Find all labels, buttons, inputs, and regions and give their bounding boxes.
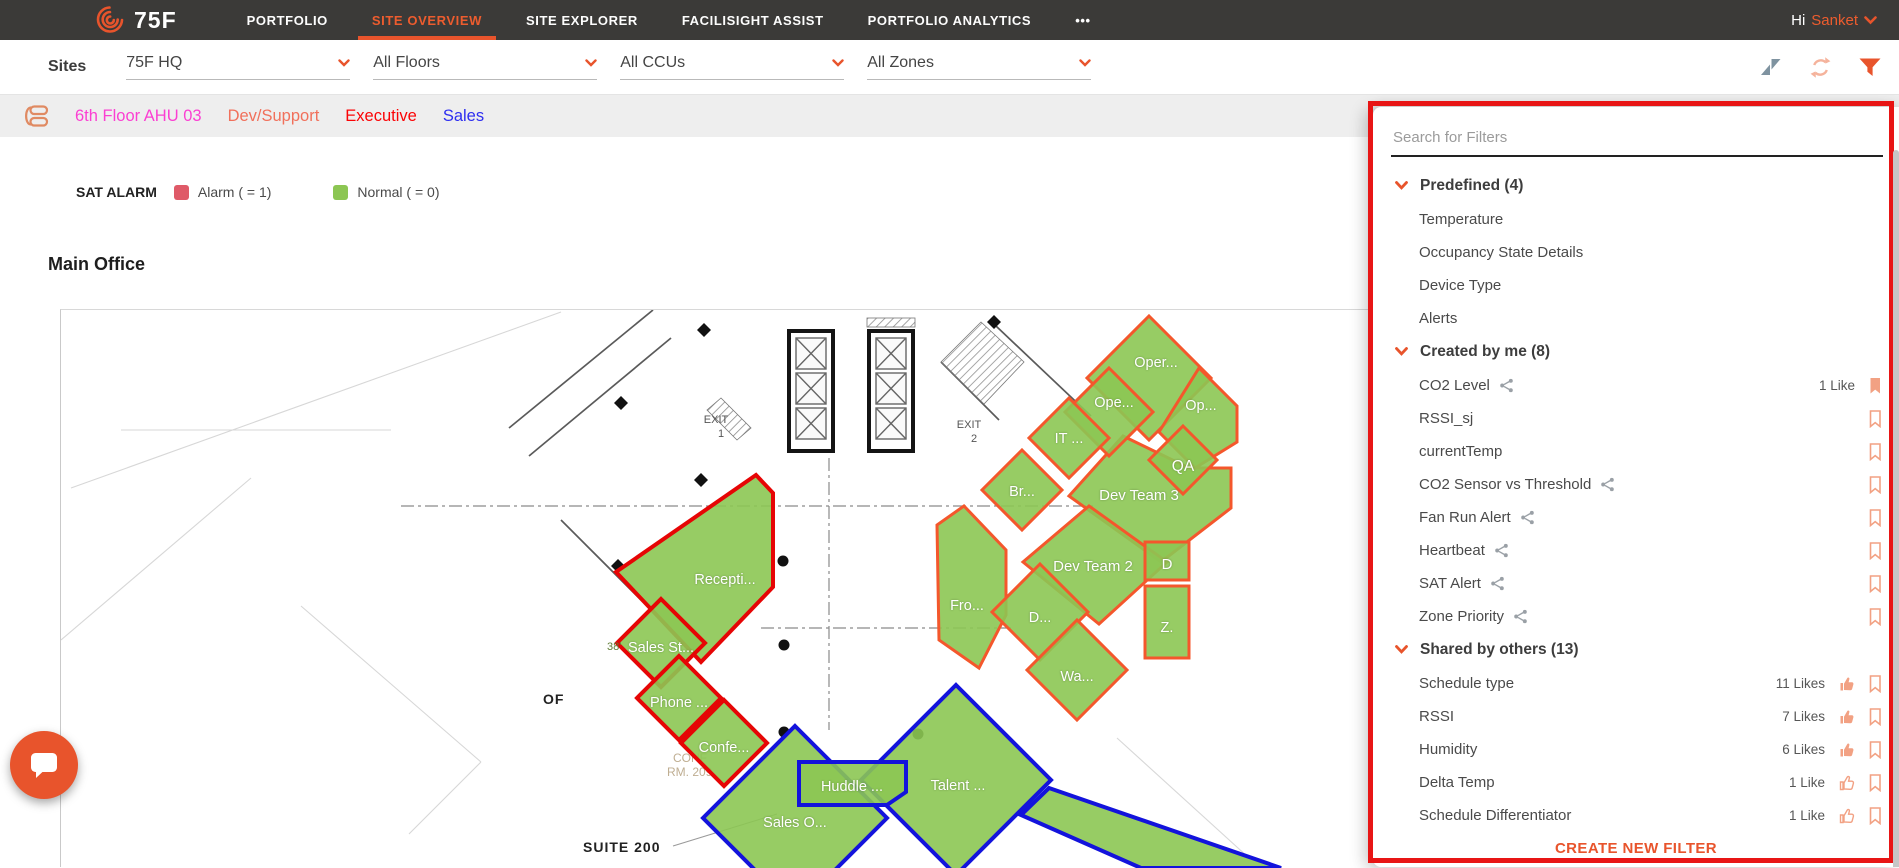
exit1-label: EXIT [704,414,729,426]
likes-count: 7 Likes [1782,709,1825,724]
dropdown-floors[interactable]: All Floors [373,54,597,80]
filter-item-name: SAT Alert [1419,575,1481,592]
filter-item-row[interactable]: currentTemp [1373,435,1899,468]
bookmark-icon[interactable] [1868,608,1883,626]
zendesk-icon[interactable] [1759,57,1782,77]
filter-item-actions: 7 Likes [1782,708,1883,726]
create-new-filter-button[interactable]: CREATE NEW FILTER [1373,840,1899,857]
suite-200-label: SUITE 200 [583,839,660,855]
nav-item-facilisight-assist[interactable]: FACILISIGHT ASSIST [660,0,846,40]
zone-label-confe: Confe... [699,740,750,756]
filter-search-input[interactable] [1391,125,1883,157]
user-menu[interactable]: Hi Sanket [1791,0,1877,40]
filter-section-title: Predefined (4) [1420,177,1523,195]
nav-item-site-explorer[interactable]: SITE EXPLORER [504,0,660,40]
filter-item-name: Heartbeat [1419,542,1485,559]
zone-label-it: IT ... [1055,431,1084,447]
filter-section-title: Shared by others (13) [1420,641,1579,659]
logo-flame-icon [95,5,125,35]
zone-label-br: Br... [1009,484,1035,500]
filter-item-name: currentTemp [1419,443,1502,460]
zone-group-icon[interactable] [22,104,49,128]
zone-group-tab-executive[interactable]: Executive [345,107,417,126]
chevron-down-icon [1864,16,1877,25]
top-nav: 75F PORTFOLIOSITE OVERVIEWSITE EXPLORERF… [0,0,1899,40]
legend-items: Alarm ( = 1)Normal ( = 0) [174,184,502,200]
zone-fro[interactable] [937,506,1006,668]
filter-item-row[interactable]: SAT Alert [1373,567,1899,600]
zones-alarm [616,475,773,786]
filter-item-actions [1868,509,1883,527]
filter-item-name: Delta Temp [1419,774,1495,791]
filter-item-name: Temperature [1419,211,1503,228]
filter-item-actions [1868,575,1883,593]
filter-item-name: Humidity [1419,741,1477,758]
exit1-number: 1 [718,428,724,440]
bookmark-icon[interactable] [1868,575,1883,593]
likes-count: 1 Like [1819,378,1855,393]
dropdown-value-floors: All Floors [373,54,440,72]
zone-label-recepti: Recepti... [694,572,755,588]
filter-item-name: Schedule type [1419,675,1514,692]
thumbs-up-icon[interactable] [1838,709,1855,725]
bookmark-icon[interactable] [1868,377,1883,395]
filter-item-name: Schedule Differentiator [1419,807,1571,824]
share-icon[interactable] [1513,609,1528,624]
zone-group-tab-sales[interactable]: Sales [443,107,484,126]
filter-item-row[interactable]: Humidity6 Likes [1373,733,1899,766]
zone-label-dev3: Dev Team 3 [1099,487,1179,504]
zone-label-fro: Fro... [950,598,984,614]
zone-group-tab-6th-floor-ahu-03[interactable]: 6th Floor AHU 03 [75,107,202,126]
scrollbar-thumb[interactable] [1893,150,1899,867]
zone-label-oper: Oper... [1134,355,1178,371]
filter-item-actions [1868,410,1883,428]
nav-item-portfolio-analytics[interactable]: PORTFOLIO ANALYTICS [846,0,1054,40]
legend-item-0: Alarm ( = 1) [174,184,272,200]
dropdown-value-site: 75F HQ [126,54,182,72]
filter-section-shared-by-others[interactable]: Shared by others (13) [1373,633,1899,667]
zones-selected [703,685,1281,868]
filter-item-actions: 11 Likes [1776,675,1883,693]
bookmark-icon[interactable] [1868,509,1883,527]
zone-group-tabs: 6th Floor AHU 03Dev/SupportExecutiveSale… [75,107,484,126]
legend-item-1: Normal ( = 0) [333,184,439,200]
filter-item-row[interactable]: Zone Priority [1373,600,1899,633]
likes-count: 1 Like [1789,808,1825,823]
user-name: Sanket [1811,12,1858,29]
dropdown-value-ccus: All CCUs [620,54,685,72]
filter-list: Predefined (4)TemperatureOccupancy State… [1373,169,1899,832]
filter-item-row[interactable]: Alerts [1373,302,1899,335]
zone-label-d: D [1162,556,1173,573]
chat-bubble-icon [29,751,59,779]
dropdown-value-zones: All Zones [867,54,934,72]
share-icon[interactable] [1499,378,1514,393]
of-label: OF [543,691,564,707]
dimension-label: 38' [607,641,621,653]
filter-item-name: Fan Run Alert [1419,509,1511,526]
nav-items: PORTFOLIOSITE OVERVIEWSITE EXPLORERFACIL… [225,0,1113,40]
greeting-text: Hi [1791,12,1805,29]
filter-item-row[interactable]: Fan Run Alert [1373,501,1899,534]
zone-label-huddle: Huddle ... [821,779,883,795]
legend-swatch [174,185,189,200]
filter-funnel-icon[interactable] [1859,58,1881,77]
filter-item-row[interactable]: Delta Temp1 Like [1373,766,1899,799]
filter-item-actions [1868,608,1883,626]
filter-item-actions: 6 Likes [1782,741,1883,759]
filter-item-actions [1868,443,1883,461]
filter-item-row[interactable]: RSSI7 Likes [1373,700,1899,733]
legend-label: Alarm ( = 1) [198,184,272,200]
zone-label-op: Op... [1185,398,1216,414]
filter-item-name: RSSI [1419,708,1454,725]
bookmark-icon[interactable] [1868,542,1883,560]
nav-item-site-overview[interactable]: SITE OVERVIEW [350,0,504,40]
thumbs-up-icon[interactable] [1838,676,1855,692]
filter-item-name: CO2 Level [1419,377,1490,394]
zone-label-dev2: Dev Team 2 [1053,558,1133,575]
toolbar-icons [1759,56,1881,79]
filter-item-row[interactable]: CO2 Level1 Like [1373,369,1899,402]
zone-group-tab-dev-support[interactable]: Dev/Support [228,107,320,126]
filter-item-row[interactable]: RSSI_sj [1373,402,1899,435]
filter-item-row[interactable]: CO2 Sensor vs Threshold [1373,468,1899,501]
likes-count: 6 Likes [1782,742,1825,757]
filter-item-name: RSSI_sj [1419,410,1473,427]
zone-label-wa: Wa... [1060,669,1093,685]
dropdown-ccus[interactable]: All CCUs [620,54,844,80]
legend: SAT ALARM Alarm ( = 1)Normal ( = 0) [76,184,501,200]
refresh-icon[interactable] [1809,56,1832,79]
filter-item-actions: 1 Like [1789,807,1883,825]
filter-item-row[interactable]: Schedule type11 Likes [1373,667,1899,700]
zone-label-phone: Phone ... [650,695,708,711]
zone-label-z: Z. [1161,620,1174,636]
chevron-down-icon [338,54,350,72]
nav-item-portfolio[interactable]: PORTFOLIO [225,0,350,40]
thumbs-up-icon[interactable] [1838,808,1855,824]
filter-item-name: Zone Priority [1419,608,1504,625]
zone-label-sales-st: Sales St... [628,640,694,656]
chevron-down-icon [1395,641,1408,659]
bookmark-icon[interactable] [1868,807,1883,825]
filter-item-actions [1868,542,1883,560]
legend-label: Normal ( = 0) [357,184,439,200]
share-icon[interactable] [1520,510,1535,525]
filter-item-row[interactable]: Temperature [1373,203,1899,236]
filter-item-actions [1868,476,1883,494]
share-icon[interactable] [1600,477,1615,492]
sites-label: Sites [48,58,86,76]
thumbs-up-icon[interactable] [1838,742,1855,758]
filter-section-created-by-me[interactable]: Created by me (8) [1373,335,1899,369]
bookmark-icon[interactable] [1868,476,1883,494]
filter-item-name: Occupancy State Details [1419,244,1583,261]
bookmark-icon[interactable] [1868,410,1883,428]
zone-talent-ext[interactable] [1021,788,1281,868]
filter-item-row[interactable]: Device Type [1373,269,1899,302]
sites-bar: Sites 75F HQAll FloorsAll CCUsAll Zones [0,40,1899,95]
zone-label-talent: Talent ... [931,778,986,794]
filter-item-row[interactable]: Schedule Differentiator1 Like [1373,799,1899,832]
dropdown-site[interactable]: 75F HQ [126,54,350,80]
chevron-down-icon [1079,54,1091,72]
filter-section-title: Created by me (8) [1420,343,1550,361]
exit2-label: EXIT [957,419,982,431]
thumbs-up-icon[interactable] [1838,775,1855,791]
share-icon[interactable] [1490,576,1505,591]
bookmark-icon[interactable] [1868,741,1883,759]
zone-label-qa: QA [1172,458,1195,475]
filter-section-predefined[interactable]: Predefined (4) [1373,169,1899,203]
likes-count: 11 Likes [1776,676,1825,691]
filter-panel: Predefined (4)TemperatureOccupancy State… [1373,107,1899,867]
filter-item-row[interactable]: Occupancy State Details [1373,236,1899,269]
filter-item-name: CO2 Sensor vs Threshold [1419,476,1591,493]
zone-label-ope: Ope... [1094,395,1134,411]
dropdown-zones[interactable]: All Zones [867,54,1091,80]
legend-title: SAT ALARM [76,184,157,200]
filter-item-actions: 1 Like [1789,774,1883,792]
dropdown-group: 75F HQAll FloorsAll CCUsAll Zones [126,54,1114,80]
chevron-down-icon [1395,177,1408,195]
filter-item-row[interactable]: Heartbeat [1373,534,1899,567]
legend-swatch [333,185,348,200]
likes-count: 1 Like [1789,775,1825,790]
bookmark-icon[interactable] [1868,774,1883,792]
exit2-number: 2 [971,433,977,445]
filter-item-name: Device Type [1419,277,1501,294]
filter-item-name: Alerts [1419,310,1457,327]
filter-item-actions: 1 Like [1819,377,1883,395]
bookmark-icon[interactable] [1868,443,1883,461]
nav-item-more[interactable]: ••• [1053,0,1112,40]
chevron-down-icon [1395,343,1408,361]
brand-name: 75F [134,7,177,34]
chat-fab-button[interactable] [10,731,78,799]
share-icon[interactable] [1494,543,1509,558]
zone-label-d2: D... [1029,610,1052,626]
chevron-down-icon [832,54,844,72]
zone-label-sales-o: Sales O... [763,815,827,831]
page-title: Main Office [48,254,145,275]
brand[interactable]: 75F [0,0,177,40]
bookmark-icon[interactable] [1868,708,1883,726]
bookmark-icon[interactable] [1868,675,1883,693]
chevron-down-icon [585,54,597,72]
